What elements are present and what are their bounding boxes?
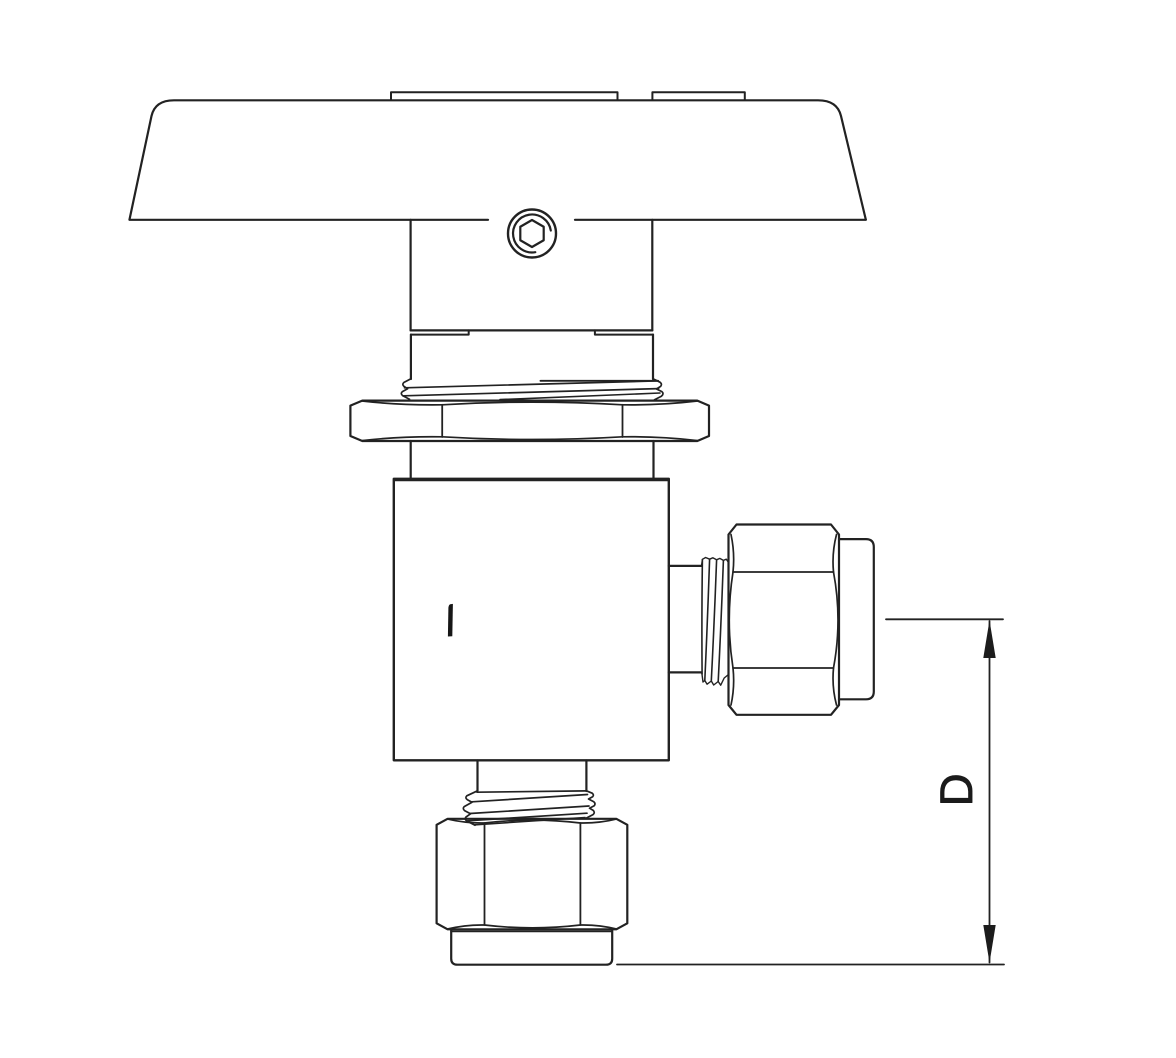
svg-text:D: D	[931, 773, 982, 806]
